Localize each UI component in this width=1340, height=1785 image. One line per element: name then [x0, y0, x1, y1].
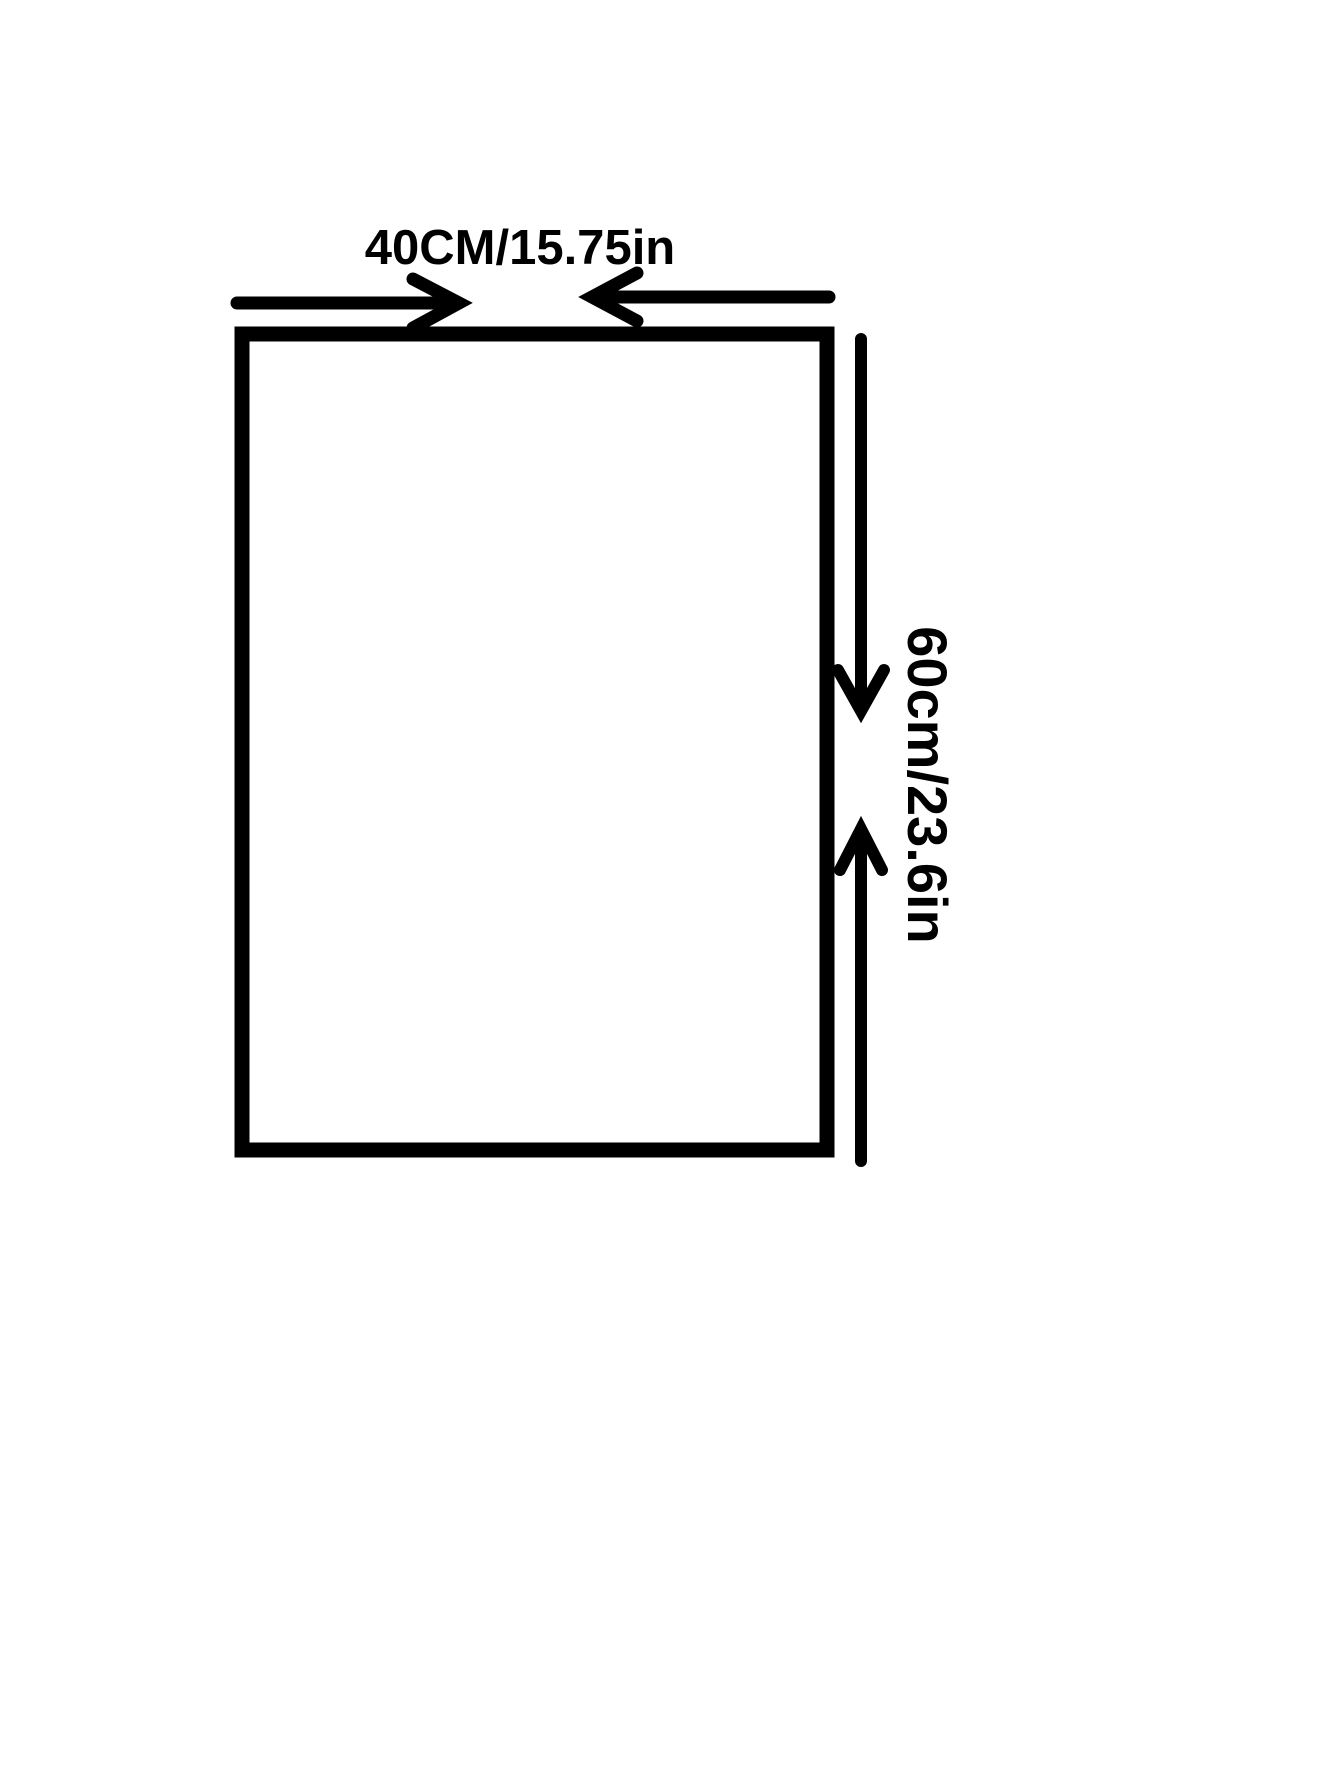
product-rectangle-outline [242, 334, 827, 1150]
dimension-diagram: 40CM/15.75in 60cm/23.6in [0, 0, 1340, 1785]
width-dimension-label: 40CM/15.75in [365, 221, 676, 275]
width-arrow-left-pointing [592, 273, 829, 321]
diagram-canvas: 40CM/15.75in 60cm/23.6in [0, 0, 1340, 1785]
height-arrow-up-pointing [840, 829, 882, 1161]
height-dimension-label: 60cm/23.6in [896, 626, 959, 944]
height-arrow-down-pointing [838, 339, 884, 711]
width-arrow-right-pointing [237, 279, 459, 328]
